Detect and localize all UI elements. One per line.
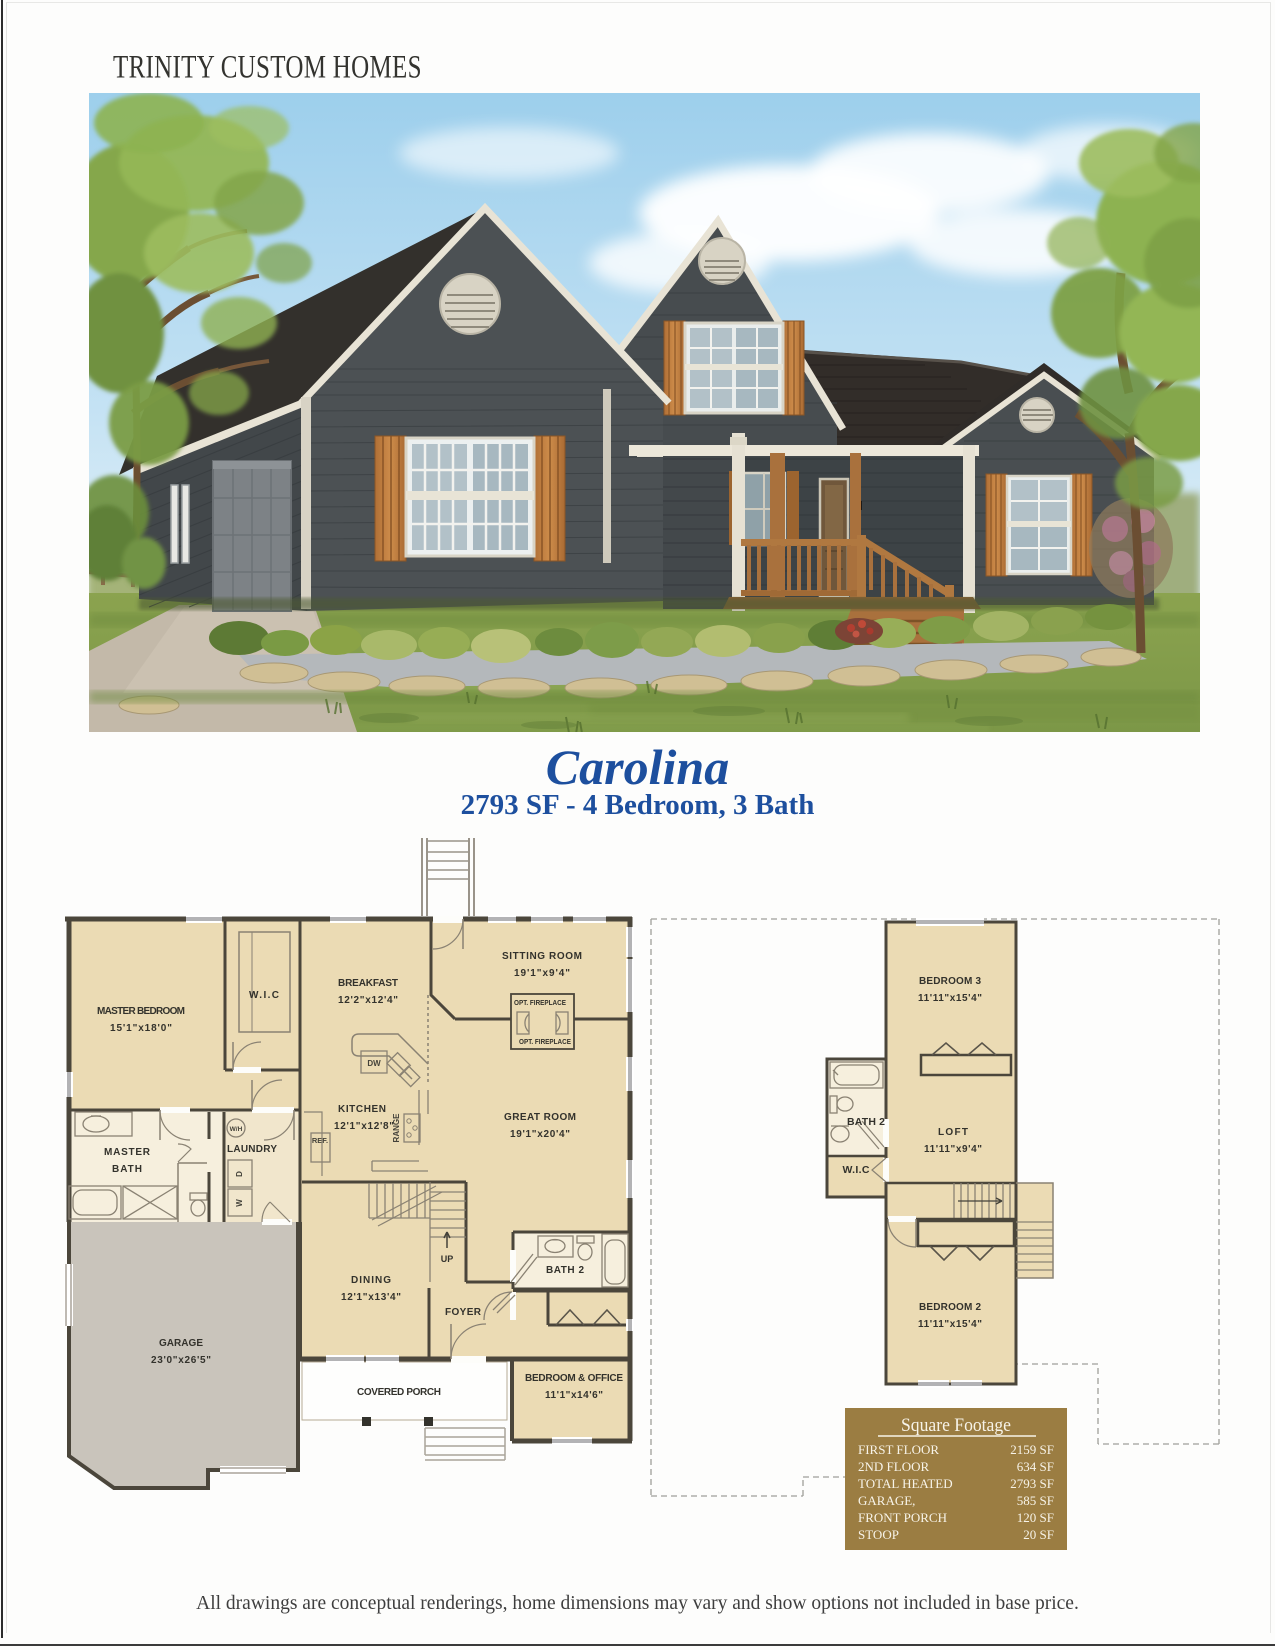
svg-text:FOYER: FOYER [445,1307,482,1318]
svg-text:MASTER: MASTER [104,1147,151,1158]
svg-text:DINING: DINING [351,1275,391,1286]
svg-text:BREAKFAST: BREAKFAST [338,978,398,989]
svg-text:23'0"x26'5": 23'0"x26'5" [151,1355,211,1366]
svg-text:KITCHEN: KITCHEN [338,1104,386,1115]
svg-text:W/H: W/H [230,1126,243,1133]
svg-text:11'11"x15'4": 11'11"x15'4" [918,1319,982,1330]
svg-text:19'1"x20'4": 19'1"x20'4" [510,1129,570,1140]
svg-text:2793 SF: 2793 SF [1010,1476,1054,1491]
svg-text:11'1"x14'6": 11'1"x14'6" [545,1390,603,1401]
svg-text:BEDROOM 3: BEDROOM 3 [919,976,981,987]
svg-text:COVERED PORCH: COVERED PORCH [357,1387,441,1398]
svg-text:GARAGE,: GARAGE, [858,1493,915,1508]
svg-text:585 SF: 585 SF [1017,1493,1054,1508]
svg-text:2ND FLOOR: 2ND FLOOR [858,1459,929,1474]
svg-text:D: D [235,1171,244,1177]
svg-text:20 SF: 20 SF [1023,1527,1054,1542]
svg-text:FIRST FLOOR: FIRST FLOOR [858,1442,939,1457]
svg-text:W.I.C: W.I.C [249,990,279,1001]
svg-text:LAUNDRY: LAUNDRY [227,1144,277,1155]
svg-text:LOFT: LOFT [938,1127,968,1138]
svg-text:TOTAL HEATED: TOTAL HEATED [858,1476,953,1491]
svg-text:OPT. FIREPLACE: OPT. FIREPLACE [519,1037,571,1046]
svg-text:OPT. FIREPLACE: OPT. FIREPLACE [514,998,566,1007]
svg-text:SITTING ROOM: SITTING ROOM [502,951,582,962]
svg-text:11'11"x9'4": 11'11"x9'4" [924,1144,982,1155]
svg-text:Square Footage: Square Footage [901,1415,1011,1436]
svg-text:GARAGE: GARAGE [159,1338,203,1349]
svg-text:UP: UP [441,1254,454,1264]
svg-text:19'1"x9'4": 19'1"x9'4" [514,968,570,979]
svg-text:12'1"x13'4": 12'1"x13'4" [341,1292,401,1303]
svg-text:BEDROOM 2: BEDROOM 2 [919,1302,981,1313]
svg-text:120 SF: 120 SF [1017,1510,1054,1525]
svg-text:BATH 2: BATH 2 [546,1265,584,1276]
svg-text:11'11"x15'4": 11'11"x15'4" [918,993,982,1004]
svg-text:REF.: REF. [312,1136,328,1145]
svg-text:2159 SF: 2159 SF [1010,1442,1054,1457]
svg-text:FRONT PORCH: FRONT PORCH [858,1510,947,1525]
svg-text:BATH 2: BATH 2 [847,1116,885,1128]
svg-text:W: W [235,1199,244,1207]
svg-text:634 SF: 634 SF [1017,1459,1054,1474]
svg-text:BATH: BATH [112,1164,142,1175]
svg-text:STOOP: STOOP [858,1527,899,1542]
svg-text:15'1"x18'0": 15'1"x18'0" [110,1023,172,1034]
svg-text:GREAT ROOM: GREAT ROOM [504,1112,576,1123]
svg-text:W.I.C: W.I.C [843,1164,870,1176]
svg-text:12'2"x12'4": 12'2"x12'4" [338,995,398,1006]
svg-text:MASTER BEDROOM: MASTER BEDROOM [97,1006,185,1017]
svg-text:12'1"x12'8": 12'1"x12'8" [334,1121,394,1132]
svg-text:DW: DW [367,1059,381,1068]
svg-text:BEDROOM & OFFICE: BEDROOM & OFFICE [525,1373,623,1384]
